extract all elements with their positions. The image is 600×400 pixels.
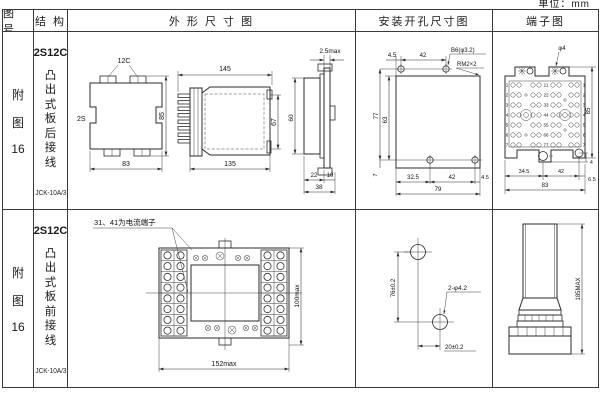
hole-spec-label: B6(φ3.2) [451, 48, 475, 54]
relay-type: JCK-10A/3 [35, 368, 66, 375]
dim-83: 83 [122, 161, 130, 168]
dim-42-terminal: 42 [558, 169, 564, 175]
row2-fig-no: 附 图 16 [3, 210, 34, 387]
relay-side-silhouette: 185MAX [493, 210, 598, 386]
header-outline: 外 形 尺 寸 图 [68, 10, 356, 32]
row1-outline-cell: 12C 2S 85 83 [68, 32, 356, 210]
terminal-pins [178, 94, 190, 143]
hole-spec-label-2: 2-φ4.2 [448, 285, 467, 292]
dim-85-terminal: 85 [586, 107, 592, 114]
dim-79: 79 [435, 187, 442, 193]
label-2s: 2S [77, 116, 86, 123]
svg-text:3: 3 [506, 103, 509, 108]
svg-text:6: 6 [506, 133, 509, 138]
dim-7: 7 [373, 173, 379, 176]
dim-145: 145 [219, 66, 231, 73]
callout-phi4: φ4 [558, 46, 566, 52]
dim-135: 135 [224, 161, 236, 168]
dim-42-top: 42 [420, 53, 427, 59]
thread-spec-label: RM2×2 [457, 62, 477, 68]
fig-number: 16 [11, 320, 24, 334]
dim-85: 85 [159, 112, 166, 120]
svg-text:44: 44 [543, 113, 549, 118]
row2-outline-cell: 31、41为电流端子 [68, 210, 356, 387]
dim-38: 38 [315, 184, 323, 191]
dim-83-terminal: 83 [542, 183, 549, 189]
terminal-diagram-rear: φ4 1234567 11223 [495, 40, 598, 208]
header-structure: 结 构 [34, 10, 68, 32]
side-view-drawing: 145 135 67 [172, 54, 284, 186]
mount-style-text: 凸出式板前接线 [45, 247, 57, 348]
svg-text:11: 11 [544, 83, 549, 88]
model-code: 2S12C [34, 47, 67, 59]
front-panel-drawing: 31、41为电流端子 [68, 210, 355, 386]
row2-structure: 2S12C 凸出式板前接线 JCK-10A/3 [34, 210, 68, 387]
svg-text:77: 77 [543, 143, 549, 148]
dim-100max: 100max [294, 284, 301, 308]
dim-185max: 185MAX [576, 277, 582, 300]
catalog-page: 单位：mm 图 号 结 构 外 形 尺 寸 图 安装开孔尺寸图 端子图 附 图 … [0, 0, 600, 400]
dim-76: 76±0.2 [391, 278, 397, 297]
dim-4-5-top: 4.5 [388, 53, 397, 59]
header-mounting: 安装开孔尺寸图 [356, 10, 493, 32]
dim-42-bottom: 42 [449, 175, 456, 181]
right-terminal-block [261, 250, 287, 336]
dim-60: 60 [288, 114, 295, 122]
header-outline-label: 外 形 尺 寸 图 [169, 13, 254, 29]
dim-34-5: 34.5 [519, 169, 530, 175]
fig-char: 附 [12, 86, 24, 103]
dim-10: 10 [327, 173, 334, 179]
left-terminal-block [161, 250, 187, 336]
mounting-hole-drawing: 4.5 42 B6(φ3.2) RM2×2 77 63 7 32.5 42 [356, 44, 492, 210]
row1-terminal-cell: φ4 1234567 11223 [493, 32, 598, 210]
model-code: 2S12C [34, 225, 67, 237]
dim-32-5: 32.5 [407, 175, 419, 181]
fig-char: 图 [12, 114, 24, 131]
row2-mounting-cell: 2-φ4.2 76±0.2 20±0.2 [356, 210, 493, 387]
svg-text:33: 33 [543, 103, 549, 108]
svg-text:55: 55 [543, 123, 549, 128]
front-view-drawing: 12C 2S 85 83 [74, 54, 170, 186]
terminal-row-numbers-left: 1234567 [506, 83, 509, 148]
svg-text:22: 22 [543, 93, 549, 98]
dim-20: 20±0.2 [445, 345, 464, 351]
dim-6-5: 6.5 [588, 177, 596, 183]
header-terminal: 端子图 [493, 10, 598, 32]
dim-63: 63 [383, 116, 389, 123]
row1-structure: 2S12C 凸出式板后接线 JCK-10A/3 [34, 32, 68, 210]
dim-67: 67 [271, 118, 278, 126]
fig-char: 附 [12, 264, 24, 281]
svg-text:7: 7 [506, 143, 509, 148]
dim-152max: 152max [212, 361, 237, 368]
svg-text:4: 4 [506, 113, 509, 118]
svg-text:5: 5 [506, 123, 509, 128]
dim-4-small: 4 [590, 160, 593, 166]
dim-77: 77 [374, 112, 380, 119]
header-fig-no-label: 图 号 [3, 10, 33, 32]
dim-22: 22 [311, 173, 318, 179]
header-structure-label: 结 构 [35, 13, 66, 29]
relay-type: JCK-10A/3 [35, 190, 66, 197]
dim-4-5-bottom: 4.5 [481, 175, 489, 181]
label-12c: 12C [118, 58, 131, 65]
mount-style-text: 凸出式板后接线 [45, 69, 57, 170]
svg-text:66: 66 [543, 133, 549, 138]
row1-mounting-cell: 4.5 42 B6(φ3.2) RM2×2 77 63 7 32.5 42 [356, 32, 493, 210]
dimension-table: 图 号 结 构 外 形 尺 寸 图 安装开孔尺寸图 端子图 附 图 16 2S1… [2, 9, 599, 388]
dim-2-5max: 2.5max [319, 48, 341, 55]
svg-text:2: 2 [506, 93, 509, 98]
header-mounting-label: 安装开孔尺寸图 [379, 13, 470, 29]
current-terminal-callout: 31、41为电流端子 [94, 217, 156, 227]
svg-text:1: 1 [506, 83, 509, 88]
header-terminal-label: 端子图 [526, 13, 565, 29]
row2-terminal-cell: 185MAX [493, 210, 598, 387]
profile-view-drawing: 2.5max 60 22 10 38 [282, 44, 354, 204]
fig-number: 16 [11, 142, 24, 156]
header-fig-no: 图 号 [3, 10, 34, 32]
row1-fig-no: 附 图 16 [3, 32, 34, 210]
mounting-screw-marks [518, 67, 559, 75]
terminal-center-numbers: 11223344556677 [543, 83, 549, 148]
fig-char: 图 [12, 292, 24, 309]
mounting-hole-drawing-2: 2-φ4.2 76±0.2 20±0.2 [356, 210, 492, 386]
